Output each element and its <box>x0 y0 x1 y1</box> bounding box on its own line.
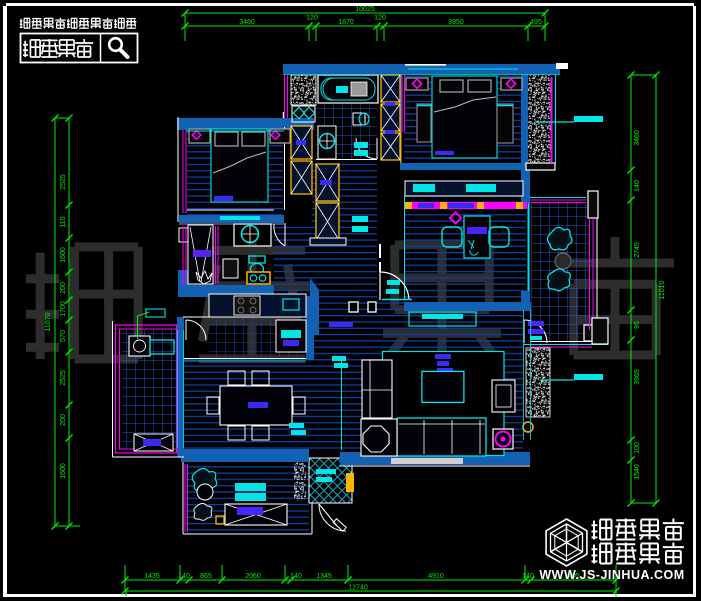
svg-text:1870: 1870 <box>338 19 354 26</box>
svg-text:570: 570 <box>60 330 67 342</box>
svg-text:1600: 1600 <box>60 463 67 479</box>
svg-text:1540: 1540 <box>634 464 641 480</box>
svg-text:200: 200 <box>60 414 67 426</box>
svg-text:11010: 11010 <box>659 280 666 299</box>
svg-text:120: 120 <box>374 15 386 22</box>
svg-text:140: 140 <box>634 180 641 192</box>
svg-text:495: 495 <box>530 19 542 26</box>
svg-text:3965: 3965 <box>634 369 641 385</box>
svg-text:1700: 1700 <box>60 301 67 317</box>
svg-text:2525: 2525 <box>60 370 67 386</box>
svg-text:3480: 3480 <box>239 19 255 26</box>
svg-text:3950: 3950 <box>448 19 464 26</box>
svg-text:140: 140 <box>178 573 190 580</box>
svg-text:2060: 2060 <box>245 573 261 580</box>
svg-text:10025: 10025 <box>355 6 375 13</box>
svg-text:95: 95 <box>634 321 641 329</box>
svg-text:1600: 1600 <box>60 247 67 263</box>
svg-text:140: 140 <box>290 573 302 580</box>
svg-text:100: 100 <box>634 442 641 454</box>
svg-text:11070: 11070 <box>45 312 52 331</box>
svg-text:1345: 1345 <box>316 573 332 580</box>
svg-text:WWW.JS-JINHUA.COM: WWW.JS-JINHUA.COM <box>539 568 684 582</box>
svg-text:120: 120 <box>306 15 318 22</box>
svg-text:4910: 4910 <box>428 573 444 580</box>
svg-text:3460: 3460 <box>634 130 641 146</box>
svg-text:865: 865 <box>200 573 212 580</box>
svg-text:2745: 2745 <box>634 242 641 258</box>
svg-text:110: 110 <box>60 216 67 227</box>
svg-text:200: 200 <box>60 282 67 294</box>
svg-text:1435: 1435 <box>144 573 160 580</box>
svg-text:140: 140 <box>522 573 534 580</box>
svg-text:2525: 2525 <box>60 174 67 190</box>
svg-text:12740: 12740 <box>348 585 368 592</box>
